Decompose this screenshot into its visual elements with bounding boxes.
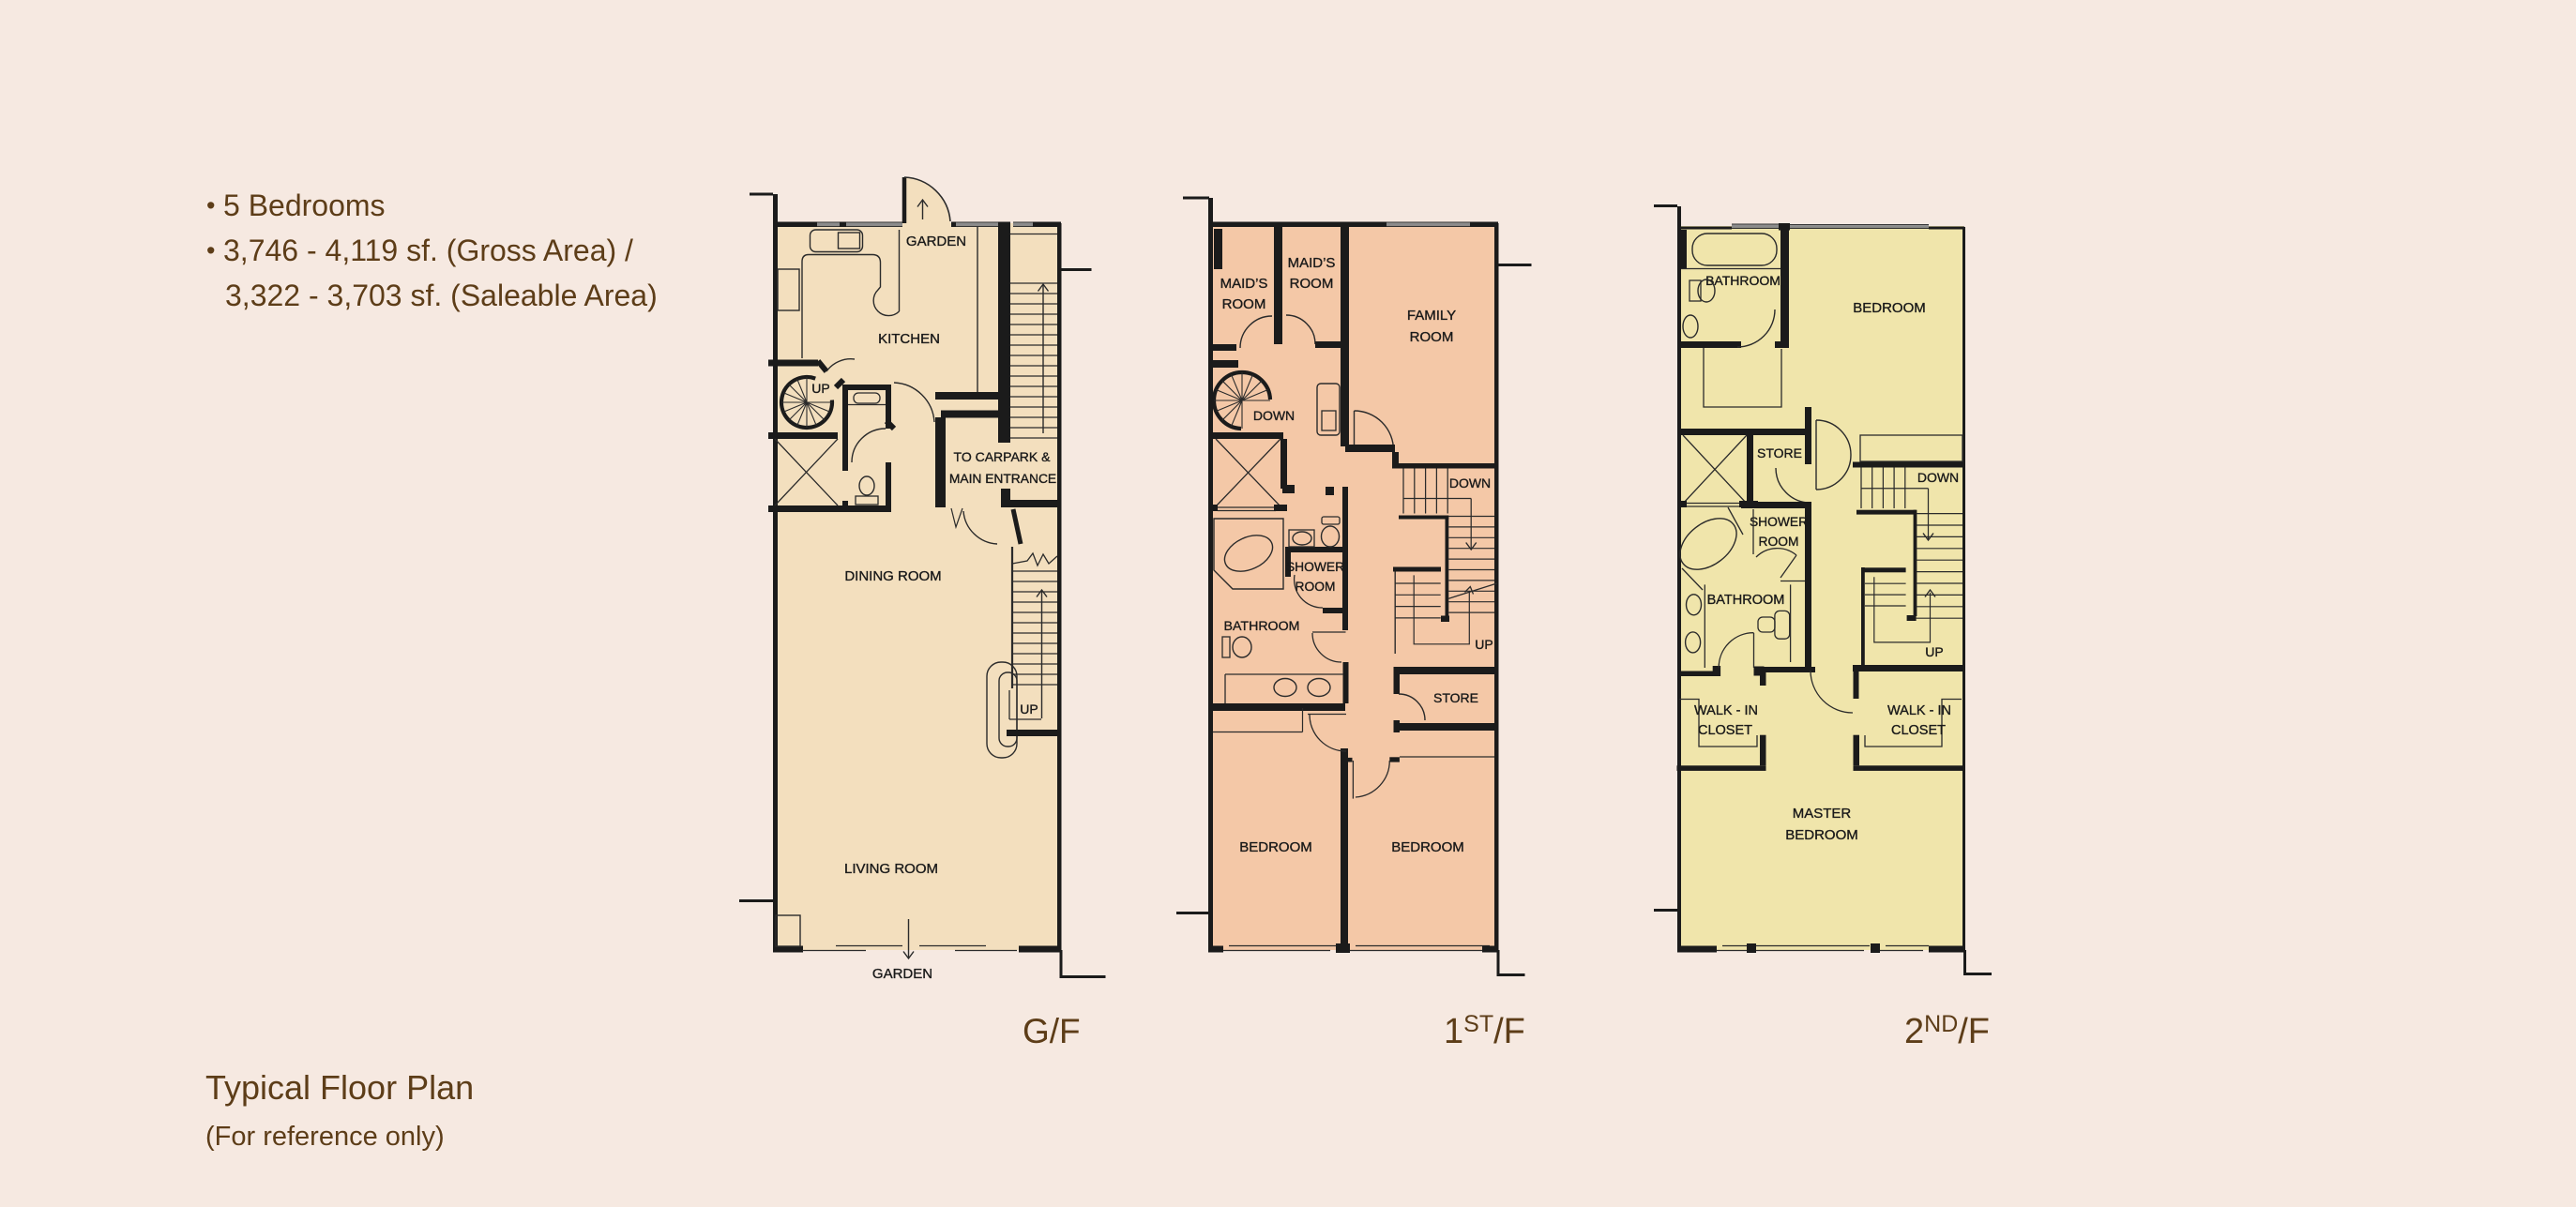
svg-text:ROOM: ROOM [1296, 580, 1336, 594]
svg-text:•: • [206, 236, 215, 264]
svg-text:DOWN: DOWN [1449, 475, 1491, 490]
svg-text:MAID’S: MAID’S [1288, 255, 1336, 271]
svg-text:Typical Floor Plan: Typical Floor Plan [205, 1068, 474, 1107]
svg-text:BATHROOM: BATHROOM [1707, 593, 1785, 608]
svg-text:MAIN ENTRANCE: MAIN ENTRANCE [949, 472, 1056, 486]
svg-text:SHOWER: SHOWER [1286, 560, 1344, 574]
svg-text:BEDROOM: BEDROOM [1391, 839, 1464, 855]
svg-text:BEDROOM: BEDROOM [1785, 827, 1858, 843]
svg-text:DOWN: DOWN [1253, 408, 1295, 423]
svg-text:MAID’S: MAID’S [1220, 276, 1268, 292]
svg-text:STORE: STORE [1757, 445, 1802, 460]
svg-text:ROOM: ROOM [1222, 296, 1266, 312]
svg-text:SHOWER: SHOWER [1750, 515, 1808, 529]
svg-text:DOWN: DOWN [1917, 470, 1959, 485]
svg-text:BATHROOM: BATHROOM [1224, 619, 1300, 634]
svg-text:GARDEN: GARDEN [906, 234, 966, 249]
svg-text:BATHROOM: BATHROOM [1705, 273, 1780, 288]
svg-text:KITCHEN: KITCHEN [878, 331, 940, 347]
svg-text:FAMILY: FAMILY [1407, 308, 1456, 324]
svg-text:BEDROOM: BEDROOM [1853, 300, 1926, 316]
svg-text:G/F: G/F [1023, 1012, 1081, 1050]
svg-text:BEDROOM: BEDROOM [1239, 839, 1312, 855]
svg-text:GARDEN: GARDEN [872, 966, 932, 982]
svg-text:•: • [206, 191, 215, 219]
svg-text:LIVING ROOM: LIVING ROOM [844, 861, 938, 877]
svg-text:ROOM: ROOM [1410, 329, 1454, 345]
svg-text:5 Bedrooms: 5 Bedrooms [223, 189, 386, 222]
svg-text:WALK - IN: WALK - IN [1694, 703, 1758, 718]
svg-text:CLOSET: CLOSET [1891, 723, 1946, 738]
svg-text:MASTER: MASTER [1793, 806, 1852, 822]
svg-text:UP: UP [1925, 644, 1943, 659]
svg-text:UP: UP [1020, 702, 1038, 717]
svg-text:3,322 - 3,703 sf. (Saleable Ar: 3,322 - 3,703 sf. (Saleable Area) [225, 279, 658, 312]
svg-text:UP: UP [811, 381, 829, 396]
svg-text:WALK - IN: WALK - IN [1887, 703, 1951, 718]
svg-text:ROOM: ROOM [1290, 276, 1334, 292]
svg-text:STORE: STORE [1433, 690, 1478, 705]
svg-text:3,746 - 4,119 sf. (Gross Area): 3,746 - 4,119 sf. (Gross Area) / [223, 234, 633, 267]
svg-text:TO CARPARK &: TO CARPARK & [954, 449, 1052, 464]
svg-text:ROOM: ROOM [1759, 535, 1799, 549]
svg-text:UP: UP [1475, 637, 1493, 652]
svg-text:CLOSET: CLOSET [1698, 723, 1752, 738]
svg-text:DINING ROOM: DINING ROOM [844, 568, 941, 584]
svg-text:(For reference only): (For reference only) [205, 1122, 445, 1152]
